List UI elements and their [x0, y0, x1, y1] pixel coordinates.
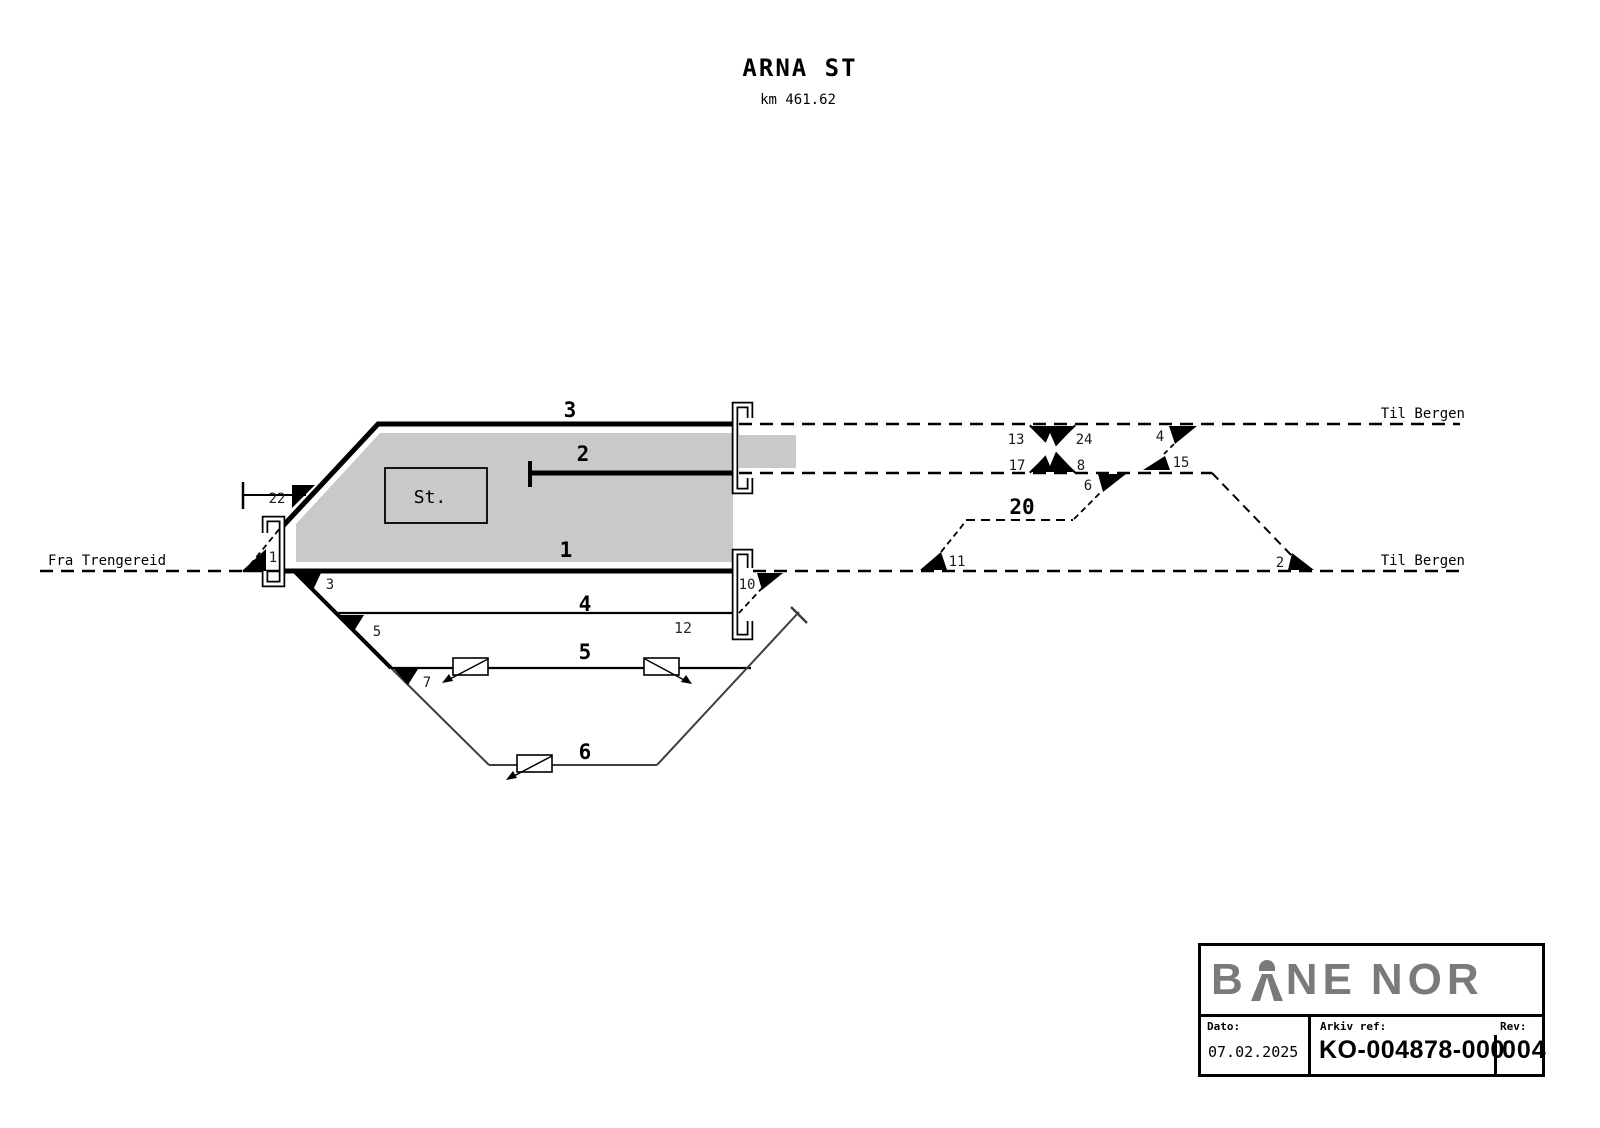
station-building-label: St. [414, 487, 447, 508]
switch-10-symbol [757, 573, 783, 590]
bane-nor-logo: B NENOR [1201, 946, 1542, 1017]
track-12-label: 12 [674, 619, 692, 637]
platform-areas [296, 433, 796, 562]
switch-11-label: 11 [949, 554, 966, 570]
main-platform [296, 433, 733, 562]
track-5-label: 5 [579, 640, 592, 664]
switch-2-symbol [1288, 553, 1314, 570]
switch-1-symbol [242, 549, 266, 571]
portal-right-lower-icon [735, 552, 750, 637]
title-block: B NENOR Dato: 07.02.2025 Arkiv ref: Rev:… [1198, 943, 1545, 1077]
date-value: 07.02.2025 [1208, 1043, 1298, 1061]
switch-6-symbol [1098, 474, 1126, 492]
switch-15-symbol [1143, 456, 1170, 470]
switch-4-symbol [1169, 426, 1197, 444]
switch-6-connection [1074, 493, 1100, 519]
archive-ref-value: KO-004878-000 [1319, 1036, 1505, 1065]
derailer-track5-right-icon [644, 658, 692, 684]
derailer-track5-left-icon [442, 658, 488, 683]
bane-nor-a-rail-icon [1250, 959, 1284, 1001]
track-6-label: 6 [579, 740, 592, 764]
switch-3-label: 3 [326, 577, 334, 593]
track-3-label: 3 [564, 398, 577, 422]
mainline-right [739, 424, 1460, 571]
switch-1-label: 1 [269, 550, 277, 566]
derailers [442, 658, 692, 780]
rev-divider [1494, 1035, 1497, 1074]
rev-value: 004 [1502, 1036, 1547, 1065]
km-label: km 461.62 [760, 92, 836, 108]
date-cell: Dato: 07.02.2025 [1201, 1017, 1311, 1074]
switch-2-label: 2 [1276, 555, 1284, 571]
switch-11-symbol [920, 552, 947, 570]
switch-13-label: 13 [1008, 432, 1025, 448]
logo-letters-nor: NOR [1371, 955, 1484, 1005]
date-label: Dato: [1207, 1020, 1240, 1033]
switch-10-label: 10 [739, 577, 756, 593]
switch-7-symbol [394, 669, 418, 685]
platform-extension [739, 435, 796, 468]
track-20-label: 20 [1009, 495, 1034, 519]
switch-6-label: 6 [1084, 478, 1092, 494]
track-2-label: 2 [577, 442, 590, 466]
switch-5-label: 5 [373, 624, 381, 640]
rev-label: Rev: [1500, 1020, 1527, 1033]
derailer-track6-icon [506, 755, 552, 780]
header: ARNA ST km 461.62 [742, 54, 857, 108]
yard-diagonal-lower [391, 668, 489, 765]
direction-til-bergen-bottom: Til Bergen [1381, 553, 1465, 569]
middle-to-bottom-diagonal [1212, 473, 1293, 557]
page-title: ARNA ST [742, 54, 857, 82]
switch-17-label: 17 [1009, 458, 1026, 474]
switch-15-label: 15 [1173, 455, 1190, 471]
buffer-stop-right [791, 607, 807, 623]
scissors-crossover [1029, 425, 1076, 473]
track-4-label: 4 [579, 592, 592, 616]
switch-4-label: 4 [1156, 429, 1164, 445]
switch-24-label: 24 [1076, 432, 1093, 448]
logo-letters-ne: NE [1286, 955, 1357, 1005]
switch-8-label: 8 [1077, 458, 1085, 474]
title-block-fields: Dato: 07.02.2025 Arkiv ref: Rev: KO-0048… [1201, 1017, 1542, 1074]
yard-tracks [294, 571, 807, 765]
track-1-label: 1 [560, 538, 573, 562]
direction-til-bergen-top: Til Bergen [1381, 406, 1465, 422]
crossover-15-4 [1164, 442, 1176, 454]
logo-letter-b: B [1211, 955, 1248, 1005]
switch-22-label: 22 [269, 491, 286, 507]
archive-ref-label: Arkiv ref: [1320, 1020, 1386, 1033]
switch-11-connection [941, 521, 966, 552]
archive-cell: Arkiv ref: Rev: KO-004878-000 004 [1311, 1017, 1542, 1074]
schematic-track-plan: St. [0, 0, 1600, 1128]
switch-7-label: 7 [423, 675, 431, 691]
direction-from-trengereid: Fra Trengereid [48, 553, 166, 569]
